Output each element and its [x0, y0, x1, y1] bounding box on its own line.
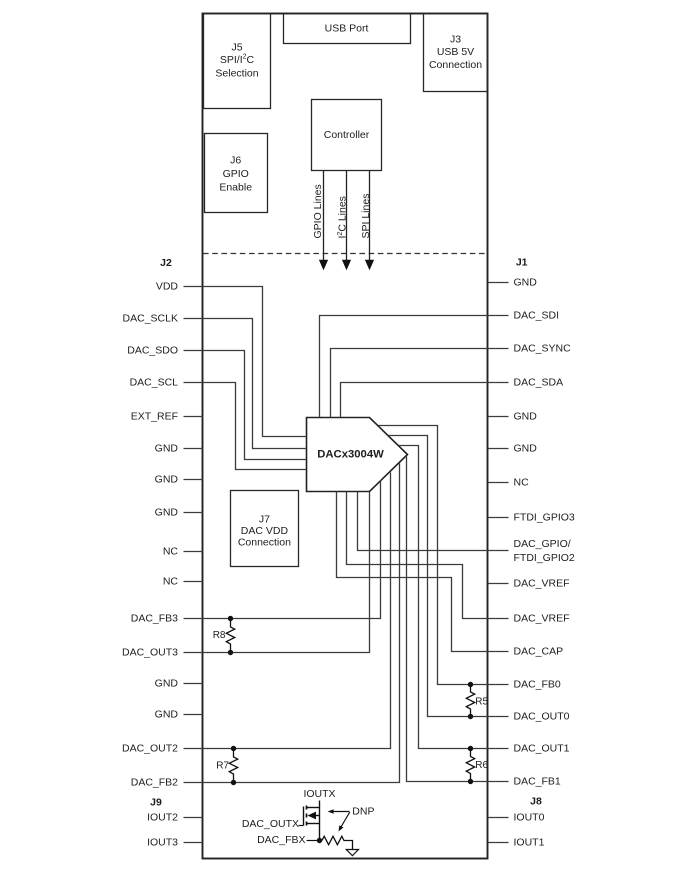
- svg-text:DAC_CAP: DAC_CAP: [514, 646, 564, 658]
- svg-text:J8: J8: [530, 796, 542, 808]
- svg-text:GPIO Lines: GPIO Lines: [312, 184, 324, 238]
- svg-text:Enable: Enable: [219, 182, 252, 194]
- svg-text:DNP: DNP: [352, 806, 374, 818]
- svg-text:DAC_SDO: DAC_SDO: [127, 345, 178, 357]
- svg-text:USB Port: USB Port: [325, 22, 369, 34]
- svg-text:R6: R6: [475, 760, 488, 771]
- svg-text:Connection: Connection: [238, 537, 291, 549]
- svg-text:DAC_FBX: DAC_FBX: [257, 834, 305, 846]
- svg-text:DAC_OUT0: DAC_OUT0: [514, 711, 570, 723]
- svg-text:DAC VDD: DAC VDD: [241, 525, 289, 537]
- svg-text:FTDI_GPIO2: FTDI_GPIO2: [514, 552, 575, 564]
- svg-text:DAC_FB2: DAC_FB2: [131, 777, 178, 789]
- svg-text:J3: J3: [450, 34, 461, 46]
- svg-text:SPI Lines: SPI Lines: [360, 194, 372, 239]
- svg-text:GND: GND: [155, 678, 179, 690]
- svg-text:NC: NC: [163, 576, 179, 588]
- svg-text:R5: R5: [475, 697, 488, 708]
- svg-text:DAC_VREF: DAC_VREF: [514, 613, 570, 625]
- svg-text:IOUT1: IOUT1: [514, 837, 545, 849]
- svg-text:R7: R7: [216, 761, 229, 772]
- svg-text:DAC_GPIO/: DAC_GPIO/: [514, 538, 571, 550]
- svg-text:J5: J5: [231, 42, 242, 54]
- svg-text:EXT_REF: EXT_REF: [131, 411, 178, 423]
- svg-text:Selection: Selection: [215, 68, 258, 80]
- svg-text:GND: GND: [514, 277, 538, 289]
- svg-text:J6: J6: [230, 155, 241, 167]
- svg-text:IOUT2: IOUT2: [147, 812, 178, 824]
- svg-text:DAC_OUT3: DAC_OUT3: [122, 647, 178, 659]
- svg-text:R8: R8: [213, 630, 226, 641]
- svg-text:DAC_OUT2: DAC_OUT2: [122, 743, 178, 755]
- svg-text:GND: GND: [155, 507, 179, 519]
- svg-text:J9: J9: [150, 797, 162, 809]
- svg-text:GND: GND: [514, 443, 538, 455]
- svg-text:J7: J7: [259, 514, 270, 526]
- svg-text:DAC_FB3: DAC_FB3: [131, 613, 178, 625]
- svg-text:NC: NC: [514, 477, 530, 489]
- svg-text:DAC_SDI: DAC_SDI: [514, 310, 560, 322]
- svg-text:J2: J2: [160, 257, 172, 269]
- svg-text:GND: GND: [155, 474, 179, 486]
- svg-text:DAC_OUTX: DAC_OUTX: [242, 818, 299, 830]
- svg-text:Controller: Controller: [324, 129, 370, 141]
- svg-text:DAC_VREF: DAC_VREF: [514, 578, 570, 590]
- svg-text:I2C Lines: I2C Lines: [336, 196, 348, 238]
- svg-text:DAC_SDA: DAC_SDA: [514, 377, 564, 389]
- svg-text:GND: GND: [155, 709, 179, 721]
- svg-text:DAC_SCL: DAC_SCL: [130, 377, 179, 389]
- svg-text:DAC_OUT1: DAC_OUT1: [514, 743, 570, 755]
- svg-text:IOUT3: IOUT3: [147, 837, 178, 849]
- svg-text:GND: GND: [155, 443, 179, 455]
- svg-text:NC: NC: [163, 546, 179, 558]
- svg-text:USB 5V: USB 5V: [437, 46, 474, 58]
- svg-text:IOUT0: IOUT0: [514, 812, 545, 824]
- svg-text:VDD: VDD: [156, 281, 179, 293]
- svg-text:J1: J1: [516, 257, 528, 269]
- svg-text:IOUTX: IOUTX: [303, 788, 335, 800]
- svg-text:GPIO: GPIO: [223, 168, 249, 180]
- svg-text:DAC_SCLK: DAC_SCLK: [123, 313, 178, 325]
- svg-text:DAC_FB0: DAC_FB0: [514, 679, 561, 691]
- svg-text:DAC_SYNC: DAC_SYNC: [514, 343, 572, 355]
- svg-text:SPI/I2C: SPI/I2C: [220, 53, 255, 66]
- svg-text:GND: GND: [514, 411, 538, 423]
- svg-text:FTDI_GPIO3: FTDI_GPIO3: [514, 512, 575, 524]
- svg-text:DAC_FB1: DAC_FB1: [514, 776, 561, 788]
- svg-text:Connection: Connection: [429, 59, 482, 71]
- svg-text:DACx3004W: DACx3004W: [317, 449, 384, 461]
